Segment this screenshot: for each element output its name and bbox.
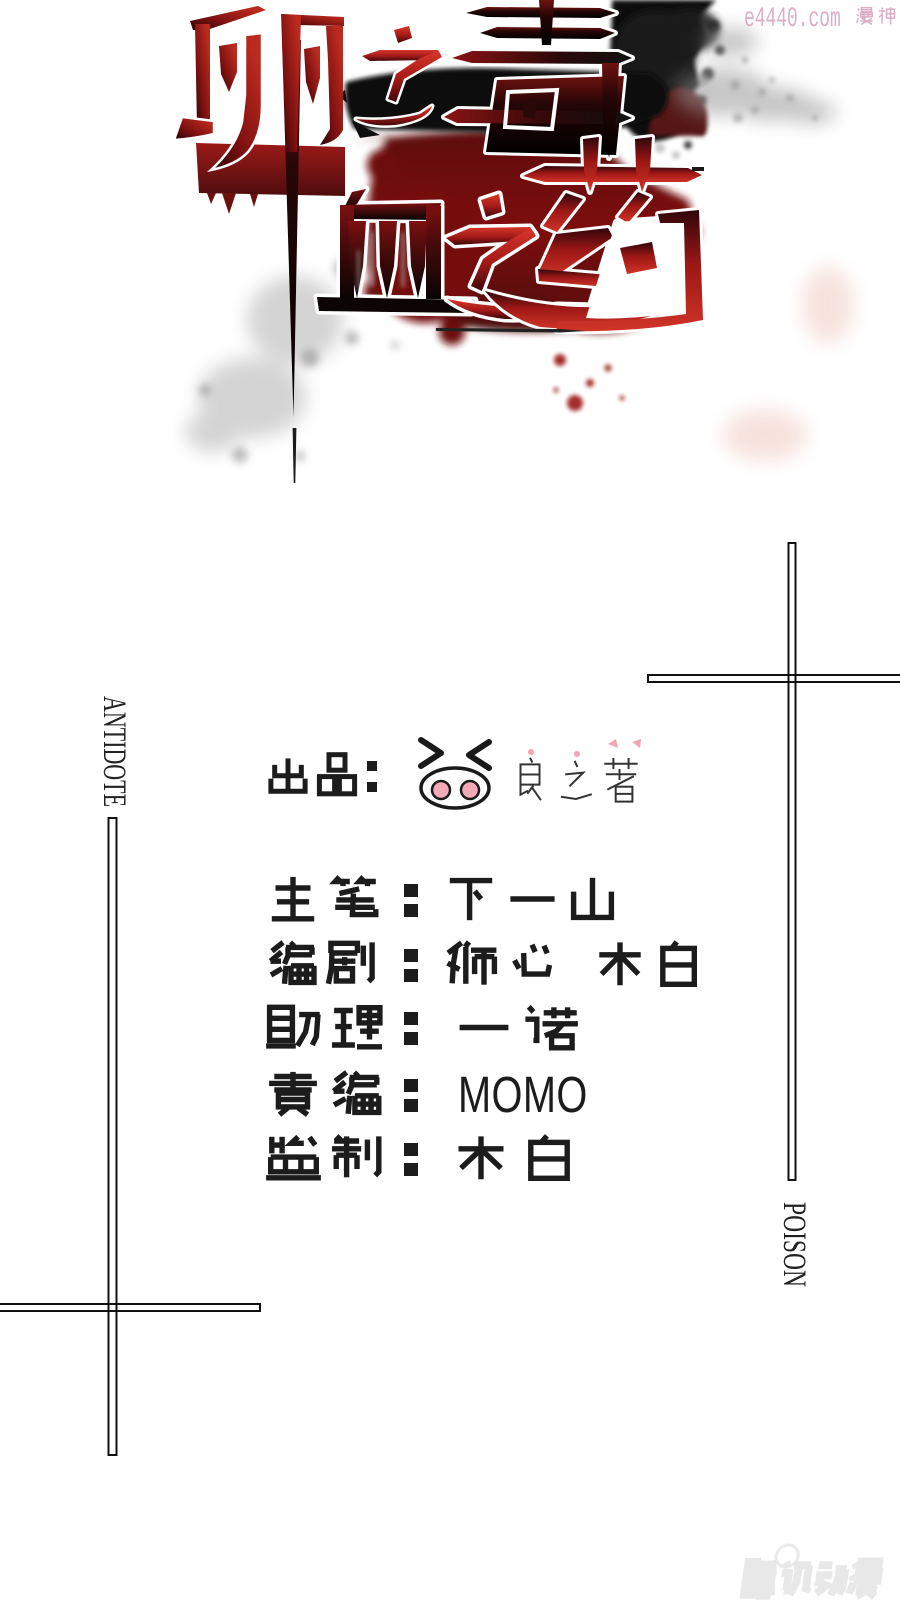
svg-text:MOMO: MOMO — [458, 1066, 588, 1123]
svg-text:POISON: POISON — [776, 1202, 812, 1287]
svg-text:e4440.com: e4440.com — [744, 3, 841, 35]
svg-text:ANTIDOTE: ANTIDOTE — [96, 696, 132, 807]
